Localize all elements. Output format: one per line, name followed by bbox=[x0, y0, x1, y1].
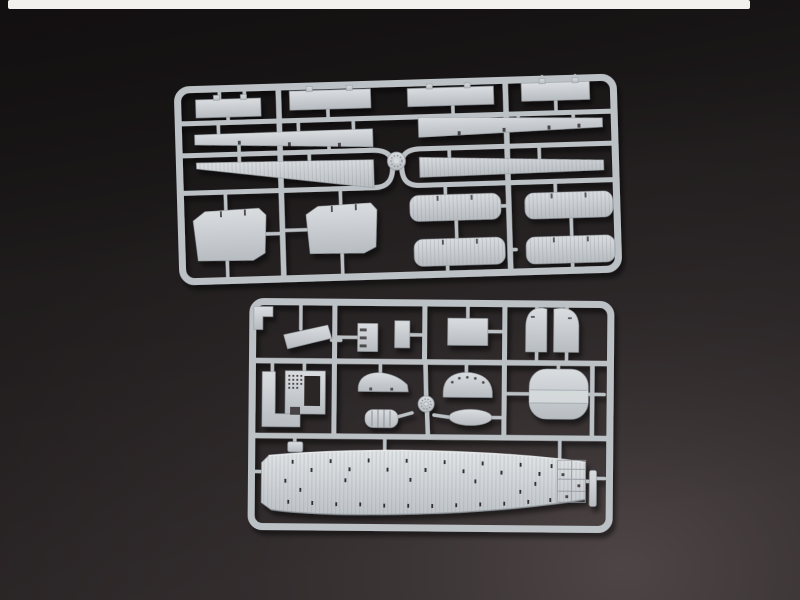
part-thin-sliver bbox=[589, 470, 596, 506]
panel-opening bbox=[304, 376, 320, 406]
flight-deck-part bbox=[261, 449, 586, 516]
part-small-tab bbox=[288, 442, 303, 452]
bottom-sprue-gate-knob bbox=[418, 396, 434, 412]
sprue-photograph bbox=[0, 0, 800, 600]
part-roundtop-deck-half bbox=[554, 308, 579, 352]
part-angular-panel bbox=[306, 203, 378, 255]
light-strip bbox=[8, 0, 750, 9]
part-rect-panel bbox=[448, 318, 488, 345]
part-angular-panel bbox=[193, 208, 268, 262]
part-ribbed-boat bbox=[365, 409, 398, 427]
top-sprue-gate-knob bbox=[387, 152, 406, 171]
part-roundtop-deck-half bbox=[526, 308, 547, 352]
part-oval-pontoon bbox=[449, 409, 492, 425]
part-rounded-stern-platform bbox=[529, 369, 588, 420]
part-stepped-bulkhead bbox=[358, 323, 378, 351]
photo-canvas bbox=[0, 0, 800, 600]
part-small-rectangle bbox=[395, 321, 410, 348]
part-perforated-panel bbox=[285, 371, 325, 415]
